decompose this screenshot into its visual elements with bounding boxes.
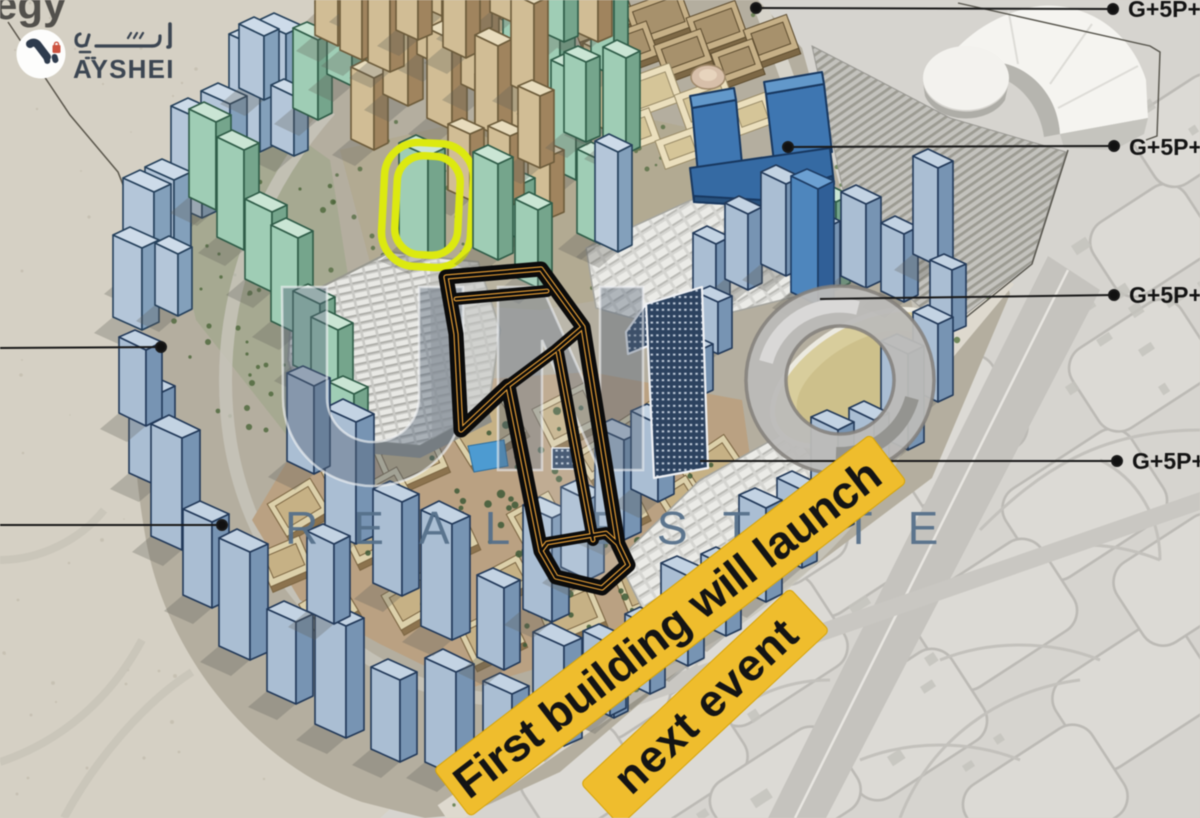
svg-text:AYSHEI: AYSHEI [73,54,175,84]
svg-text:G+5P+35: G+5P+35 [1132,448,1200,474]
svg-text:egy: egy [0,0,67,28]
svg-text:G+5P+43: G+5P+43 [1129,282,1200,308]
svg-text:G+5P+35: G+5P+35 [1128,0,1200,22]
svg-text:G+5P+35: G+5P+35 [1129,134,1200,160]
